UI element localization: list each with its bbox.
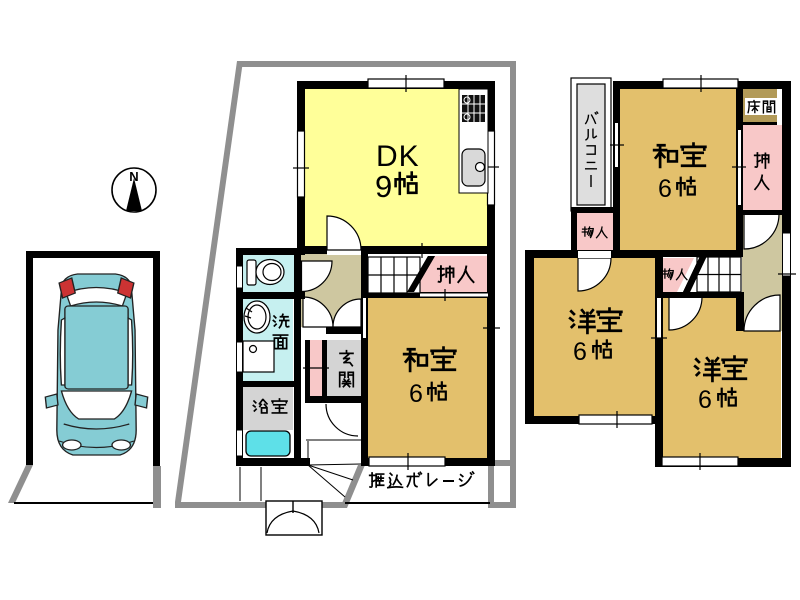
- svg-text:6: 6: [409, 380, 423, 408]
- svg-text:9: 9: [375, 169, 392, 204]
- svg-text:N: N: [129, 169, 138, 184]
- svg-text:6: 6: [573, 338, 587, 366]
- svg-text:6: 6: [698, 386, 712, 414]
- svg-text:6: 6: [658, 175, 672, 203]
